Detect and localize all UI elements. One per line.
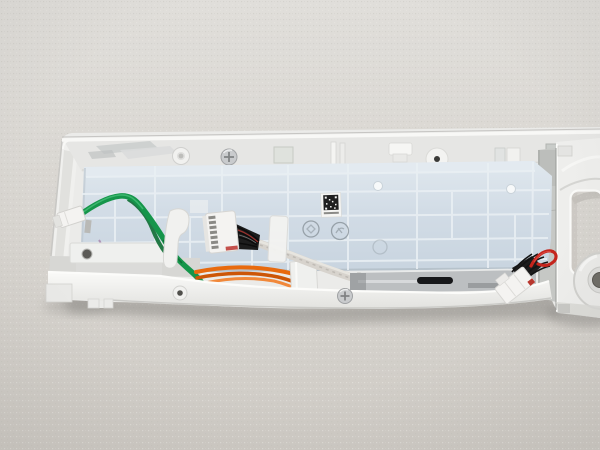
photo [0,0,600,450]
vignette [0,0,600,450]
photo-canvas [0,0,600,450]
